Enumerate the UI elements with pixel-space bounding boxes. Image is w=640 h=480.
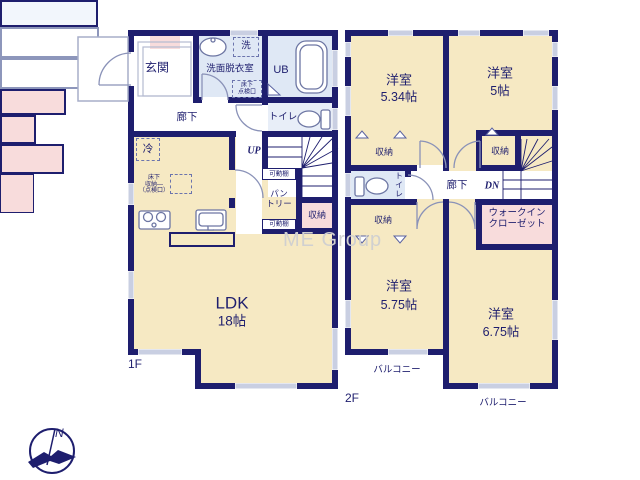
compass-icon: N bbox=[28, 426, 76, 473]
window bbox=[345, 173, 351, 197]
wall bbox=[262, 137, 268, 168]
window bbox=[388, 30, 413, 36]
closet-575 bbox=[0, 144, 64, 174]
label-shelf-bottom: 可動棚 bbox=[269, 220, 289, 227]
wall bbox=[476, 130, 482, 171]
room-ldk-extension bbox=[201, 349, 332, 383]
window bbox=[552, 42, 558, 57]
pantry-box bbox=[0, 174, 34, 213]
closet-5 bbox=[0, 115, 36, 144]
toilet1f-door-arc bbox=[236, 105, 262, 131]
label-line: 点検口 bbox=[238, 89, 256, 96]
label-washer: 洗 bbox=[241, 42, 251, 53]
wall bbox=[128, 30, 134, 52]
label-room534: 洋室 bbox=[386, 74, 412, 89]
wall bbox=[443, 36, 449, 171]
label-pantry: パン トリー bbox=[266, 189, 292, 208]
window bbox=[332, 328, 338, 370]
wall bbox=[443, 199, 449, 389]
window bbox=[128, 183, 134, 205]
window bbox=[458, 30, 480, 36]
label-washroom: 洗面脱衣室 bbox=[206, 65, 254, 76]
label-line: クローゼット bbox=[488, 219, 545, 230]
label-balcony-left: バルコニー bbox=[373, 366, 420, 377]
floor-label-1f: 1F bbox=[128, 357, 142, 371]
closet-534 bbox=[0, 89, 66, 115]
wall bbox=[476, 244, 558, 250]
label-toilet-2f: トイレ bbox=[394, 172, 403, 199]
label-room5-size: 5帖 bbox=[490, 84, 509, 98]
label-unit-bath: UB bbox=[273, 64, 288, 76]
label-room5: 洋室 bbox=[487, 67, 513, 82]
shoe-cabinet bbox=[150, 36, 180, 49]
wall bbox=[296, 197, 338, 203]
window bbox=[345, 42, 351, 57]
label-line: 床下 bbox=[238, 82, 256, 89]
window bbox=[138, 349, 182, 355]
label-storage-1f: 収納 bbox=[308, 210, 326, 220]
label-shelf-top: 可動棚 bbox=[269, 170, 289, 177]
label-wic: ウォークイン クローゼット bbox=[488, 208, 545, 229]
window bbox=[552, 86, 558, 110]
label-hall-1f: 廊下 bbox=[177, 112, 198, 124]
kitchen-counter bbox=[0, 0, 98, 27]
room-575 bbox=[351, 199, 443, 349]
label-room534-size: 5.34帖 bbox=[381, 90, 418, 104]
balcony-left bbox=[0, 27, 99, 58]
wall bbox=[515, 136, 521, 171]
wall bbox=[193, 36, 199, 103]
watermark: ME Group bbox=[283, 229, 382, 252]
balcony-right bbox=[0, 58, 106, 89]
label-toilet-1f: トイレ bbox=[269, 113, 298, 124]
wall bbox=[262, 36, 268, 105]
floorplan-canvas: N 玄関 洗面脱衣室 洗 床下 点検口 UB トイレ 廊下 UP 冷 床下 収納… bbox=[0, 0, 640, 480]
wall bbox=[262, 131, 338, 137]
window bbox=[345, 86, 351, 116]
label-genkan: 玄関 bbox=[145, 61, 169, 74]
wall bbox=[229, 198, 235, 208]
wall bbox=[405, 171, 411, 177]
wall bbox=[475, 199, 558, 205]
wall bbox=[128, 86, 134, 355]
label-inspection-hatch: 床下 点検口 bbox=[238, 82, 256, 95]
label-dn: DN bbox=[485, 180, 499, 191]
label-ldk: LDK bbox=[215, 293, 248, 312]
toilet2f-door-arc bbox=[408, 175, 433, 200]
label-balcony-right: バルコニー bbox=[479, 399, 526, 410]
window bbox=[332, 108, 338, 130]
window bbox=[230, 30, 258, 36]
underfloor-storage-hatch bbox=[170, 174, 192, 194]
window bbox=[332, 50, 338, 87]
window bbox=[235, 383, 297, 389]
window bbox=[128, 271, 134, 299]
label-room575-size: 5.75帖 bbox=[381, 298, 418, 312]
label-ldk-size: 18帖 bbox=[218, 313, 247, 328]
floor-label-2f: 2F bbox=[345, 391, 359, 405]
label-room675: 洋室 bbox=[488, 308, 514, 323]
label-line: （点検口） bbox=[139, 188, 169, 195]
label-hall-2f: 廊下 bbox=[447, 180, 468, 192]
label-storage-c: 収納 bbox=[374, 215, 392, 225]
window bbox=[345, 300, 351, 328]
label-fridge: 冷 bbox=[143, 144, 154, 156]
wall bbox=[229, 131, 235, 170]
label-up: UP bbox=[247, 145, 260, 156]
wall bbox=[128, 131, 236, 137]
label-storage-b: 収納 bbox=[491, 146, 509, 156]
label-underfloor-storage: 床下 収納― （点検口） bbox=[139, 175, 169, 195]
compass-north-label: N bbox=[55, 426, 64, 440]
window bbox=[388, 349, 428, 355]
label-storage-a: 収納 bbox=[375, 147, 393, 157]
window bbox=[523, 30, 549, 36]
label-room575: 洋室 bbox=[386, 280, 412, 295]
wall bbox=[193, 97, 202, 103]
label-line: トリー bbox=[266, 199, 292, 209]
window bbox=[478, 383, 530, 389]
wall bbox=[345, 199, 417, 205]
window bbox=[552, 300, 558, 340]
label-room675-size: 6.75帖 bbox=[483, 325, 520, 339]
label-line: 床下 bbox=[139, 175, 169, 182]
